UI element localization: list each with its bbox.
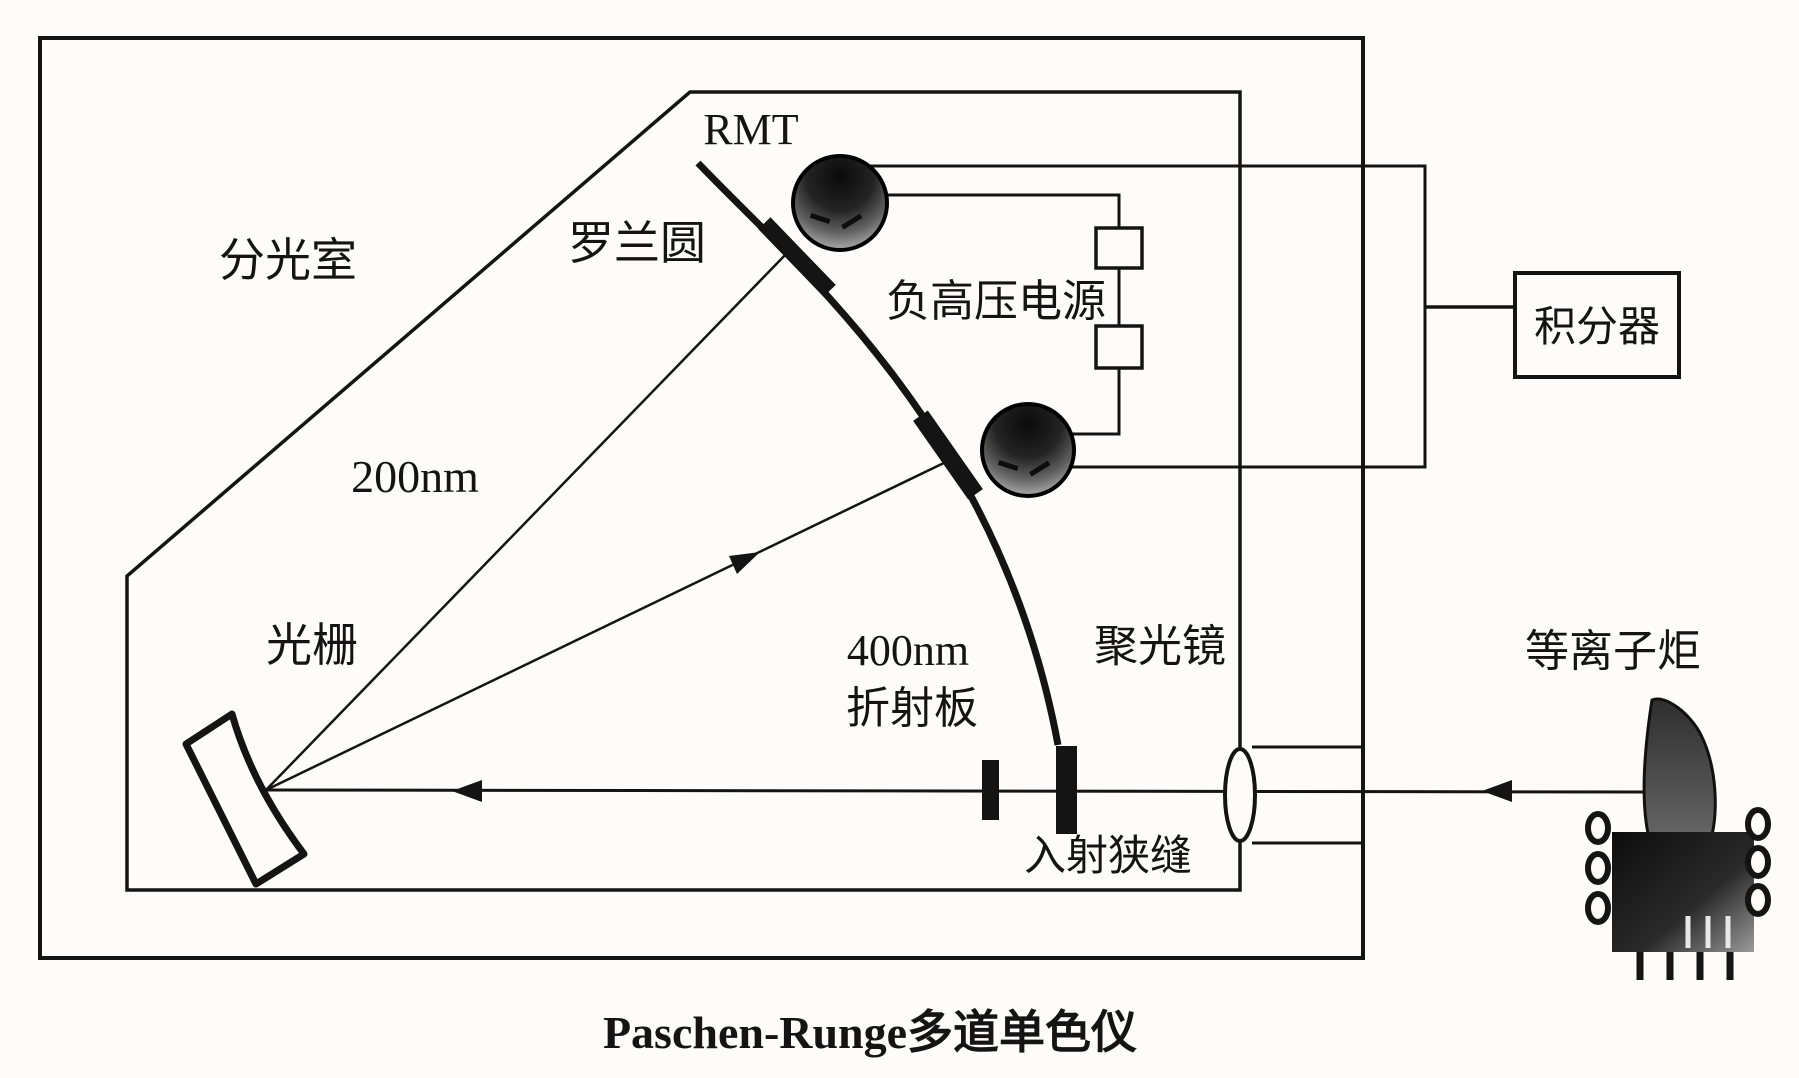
refraction-plate-bar: [982, 760, 999, 820]
refraction-plate-label: 折射板: [846, 684, 978, 733]
entrance-slit-label: 入射狭缝: [1024, 834, 1192, 880]
torch-coil: [1748, 810, 1768, 838]
pmt-2: [982, 404, 1074, 496]
schematic-canvas: 分光室 罗兰圆 RMT 负高压电源 积分器 200nm 光栅 400nm 折射板…: [0, 0, 1799, 1078]
ray-200nm: [266, 250, 790, 790]
condenser-lens-shape: [1225, 749, 1255, 841]
entry-port-tube: [1252, 747, 1363, 843]
wavelength-200nm-label: 200nm: [351, 451, 479, 502]
torch-coil: [1748, 886, 1768, 914]
entrance-slit-bar: [1056, 746, 1077, 834]
grating-shape: [186, 714, 304, 884]
beam-arrowhead-left: [452, 780, 482, 802]
beam-arrowhead-right: [1482, 780, 1512, 802]
condenser-lens-label: 聚光镜: [1094, 622, 1226, 671]
figure-title: Paschen-Runge多道单色仪: [603, 1007, 1137, 1058]
torch-body: [1612, 832, 1754, 952]
rmt-label: RMT: [703, 105, 798, 154]
hv-supply-label: 负高压电源: [886, 277, 1106, 326]
torch-coil: [1588, 894, 1608, 922]
exit-slit-2: [913, 411, 983, 500]
torch-legs: [1640, 952, 1730, 980]
hv-connector-1: [1096, 228, 1142, 268]
torch-coil: [1748, 848, 1768, 876]
wavelength-400nm-label: 400nm: [847, 626, 969, 675]
chamber-label: 分光室: [219, 235, 357, 286]
hv-connector-2: [1096, 326, 1142, 368]
rowland-circle-label: 罗兰圆: [568, 218, 706, 269]
torch-coil: [1588, 814, 1608, 842]
integrator-label: 积分器: [1534, 305, 1660, 351]
torch-coil: [1588, 854, 1608, 882]
grating-label: 光栅: [266, 620, 358, 671]
ray-400nm: [266, 460, 950, 790]
monochromator-schematic: 分光室 罗兰圆 RMT 负高压电源 积分器 200nm 光栅 400nm 折射板…: [0, 0, 1799, 1078]
plasma-torch-label: 等离子炬: [1525, 627, 1701, 676]
plasma-torch-icon: [1588, 699, 1768, 980]
pmt-1: [793, 156, 887, 250]
ray-400nm-arrowhead: [729, 552, 760, 574]
